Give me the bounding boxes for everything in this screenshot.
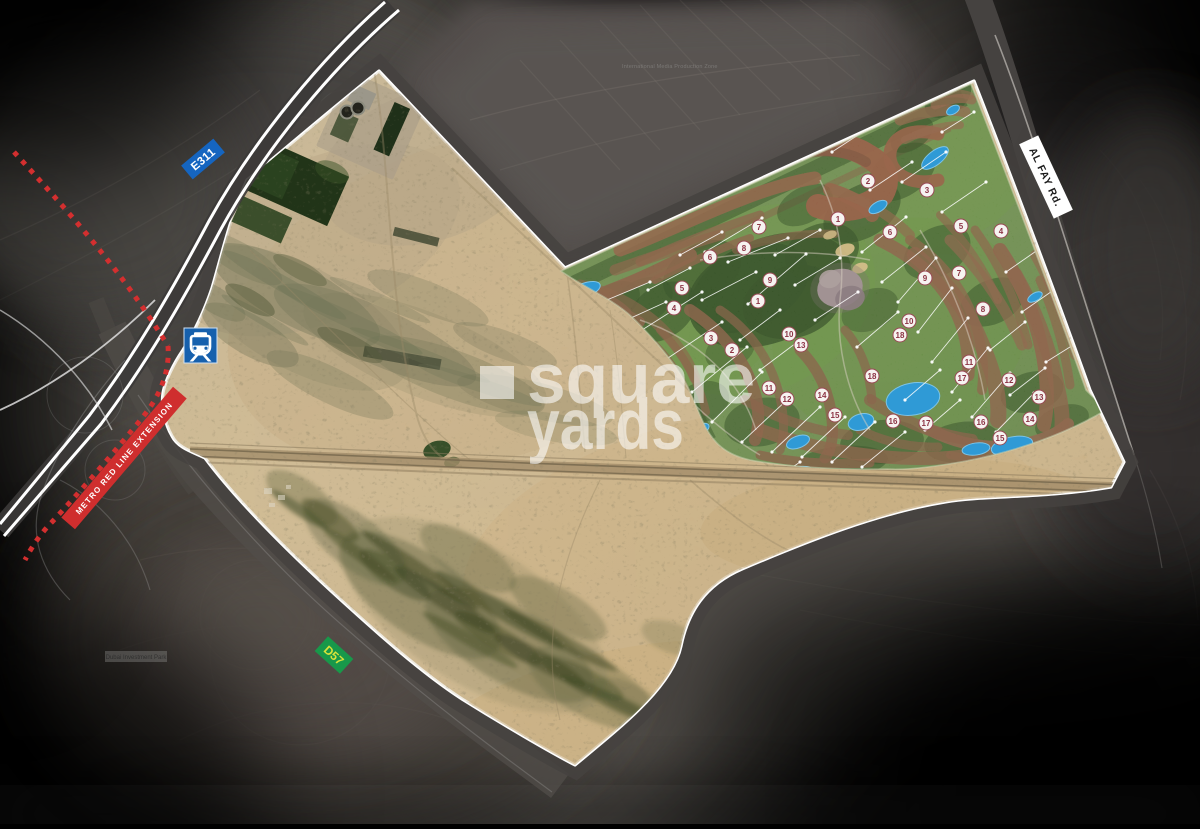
svg-text:3: 3 [925,186,930,195]
svg-text:5: 5 [680,284,685,293]
svg-text:14: 14 [818,391,827,400]
svg-text:11: 11 [765,384,774,393]
svg-text:4: 4 [672,304,677,313]
svg-text:Dubai Investment Park: Dubai Investment Park [106,655,168,661]
svg-text:18: 18 [896,331,905,340]
svg-text:8: 8 [742,244,747,253]
svg-text:13: 13 [797,341,806,350]
svg-text:12: 12 [1005,376,1014,385]
svg-text:6: 6 [888,228,893,237]
svg-text:16: 16 [977,418,986,427]
svg-text:11: 11 [965,358,974,367]
svg-text:1: 1 [756,297,761,306]
svg-text:16: 16 [889,417,898,426]
svg-text:14: 14 [1026,415,1035,424]
svg-text:15: 15 [831,411,840,420]
svg-text:18: 18 [868,372,877,381]
svg-text:17: 17 [922,419,931,428]
svg-text:yards: yards [527,386,684,465]
svg-text:12: 12 [783,395,792,404]
svg-text:4: 4 [999,227,1004,236]
svg-text:1: 1 [836,215,841,224]
svg-text:13: 13 [1035,393,1044,402]
svg-text:5: 5 [959,222,964,231]
svg-text:15: 15 [996,434,1005,443]
svg-text:7: 7 [757,223,762,232]
svg-text:6: 6 [708,253,713,262]
svg-text:9: 9 [768,276,773,285]
svg-text:2: 2 [866,177,871,186]
svg-text:10: 10 [905,317,914,326]
svg-text:8: 8 [981,305,986,314]
svg-text:9: 9 [923,274,928,283]
svg-text:10: 10 [785,330,794,339]
svg-text:International Media Production: International Media Production Zone [622,64,718,70]
svg-text:17: 17 [958,374,967,383]
svg-text:7: 7 [957,269,962,278]
